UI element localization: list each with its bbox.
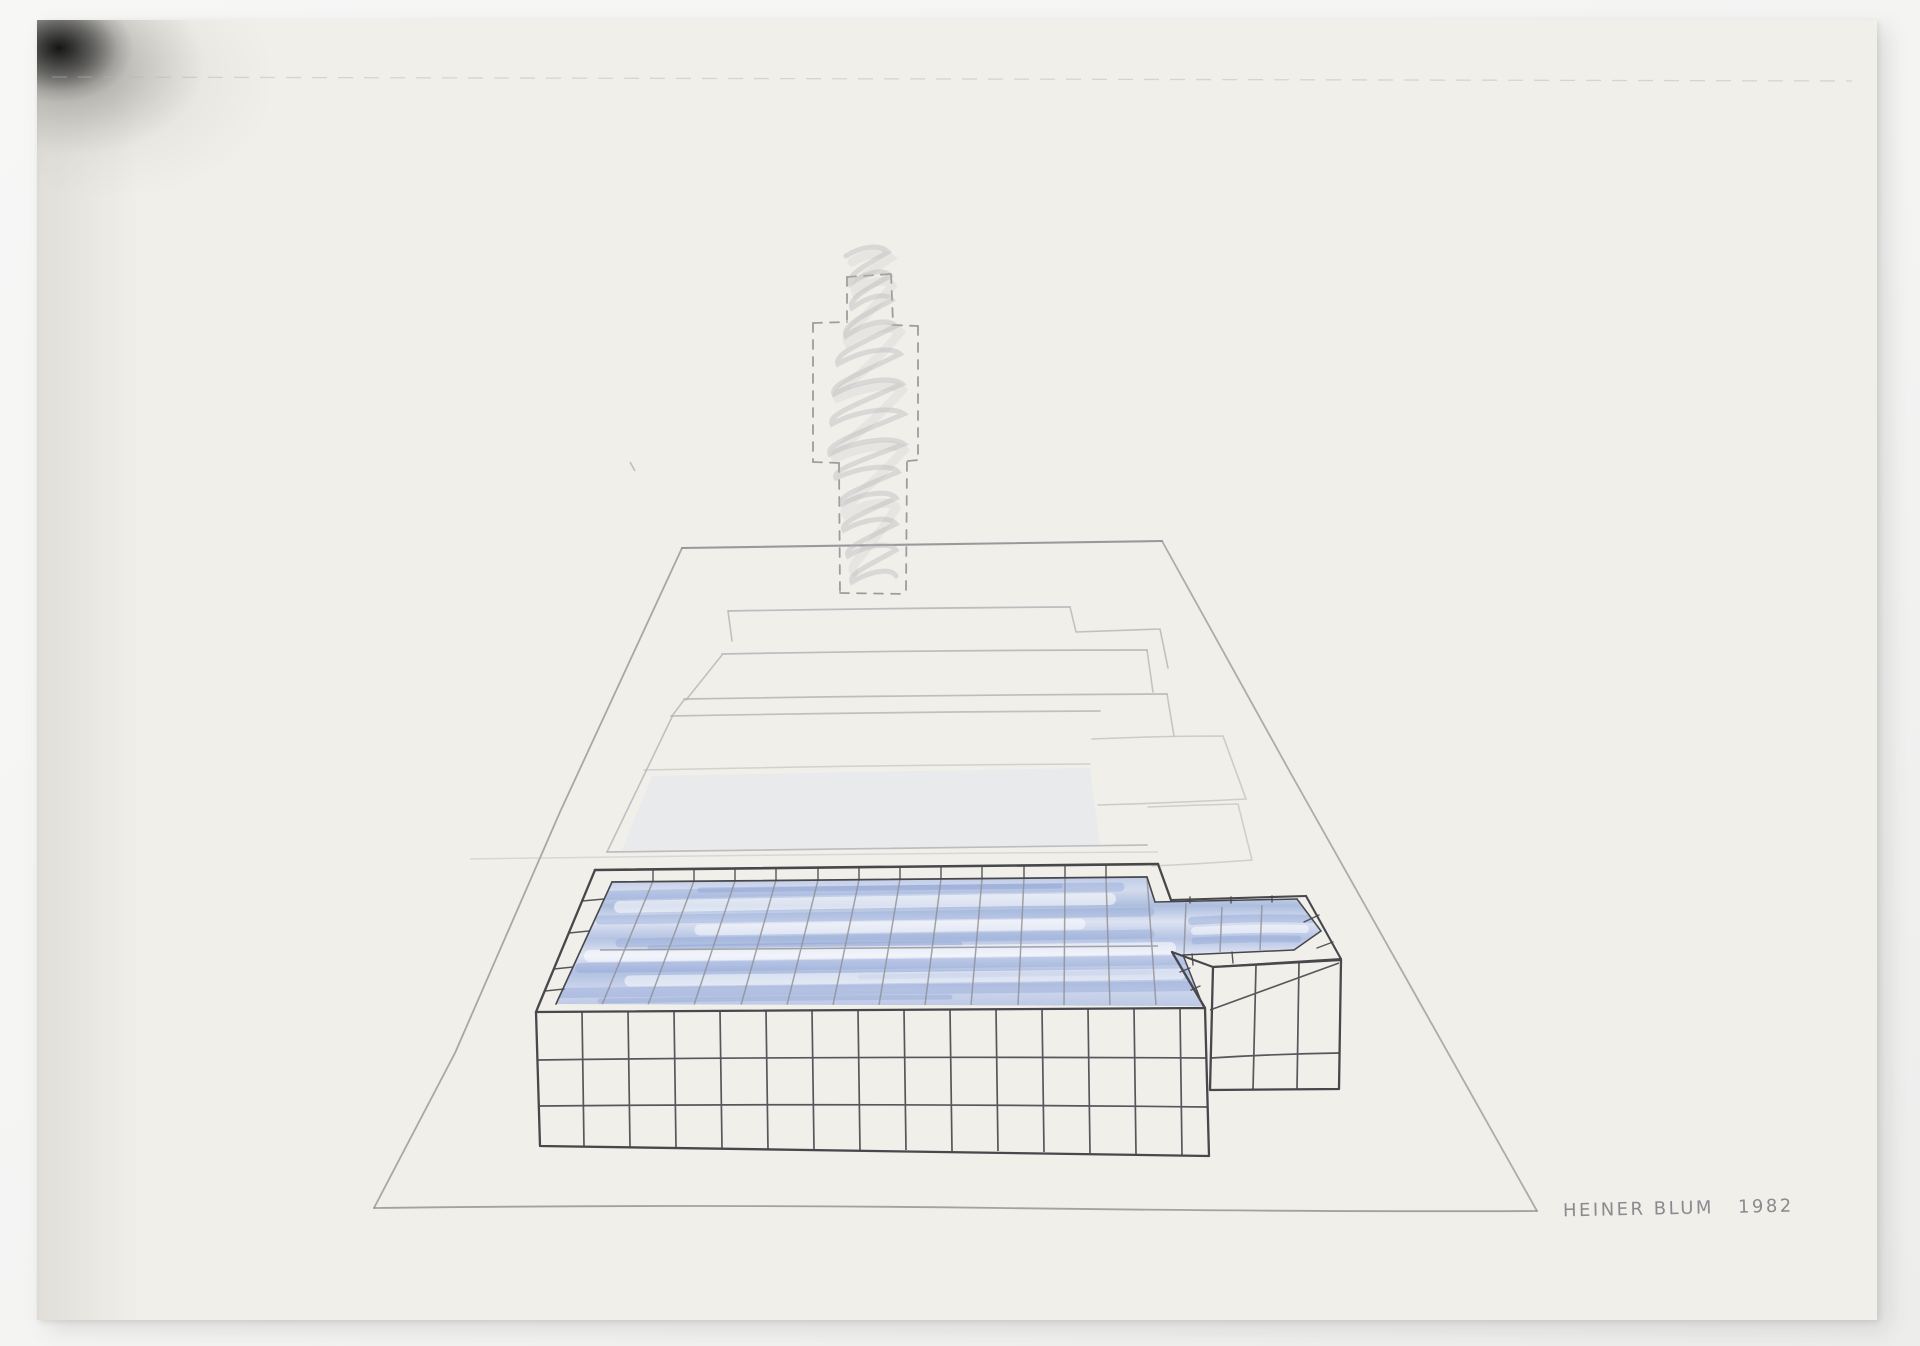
side-basin	[1210, 960, 1341, 1090]
column-scribble	[830, 247, 904, 582]
pool	[470, 852, 1341, 1156]
signature-artist: HEINER BLUM	[1563, 1197, 1714, 1221]
faint-top-rule	[52, 77, 1852, 81]
staircase	[607, 607, 1252, 866]
pencil-drawing	[0, 0, 1920, 1346]
signature-year: 1982	[1738, 1196, 1794, 1218]
stray-mark	[630, 462, 635, 471]
front-wall	[536, 1008, 1209, 1156]
artwork-photo: HEINER BLUM1982	[0, 0, 1920, 1346]
